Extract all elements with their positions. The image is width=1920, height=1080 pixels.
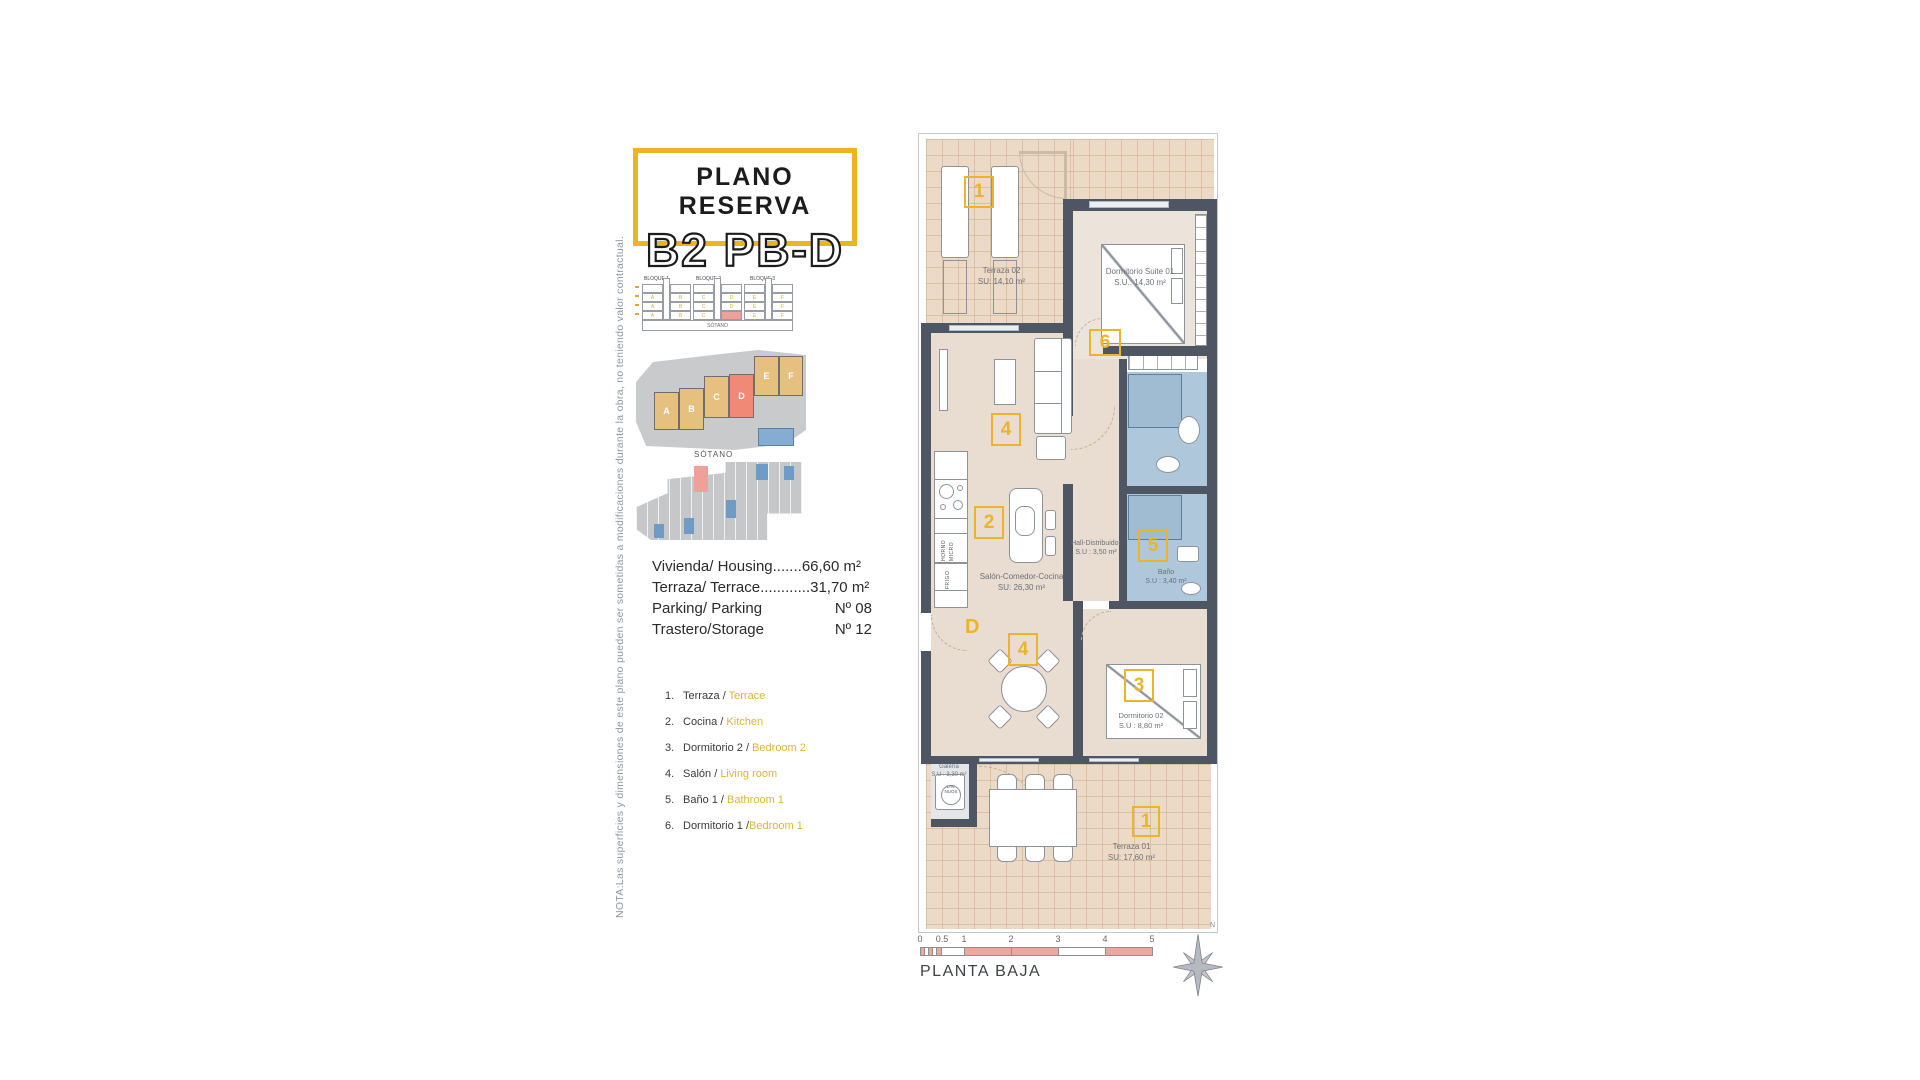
legend-item: 4.Salón / Living room: [665, 768, 875, 780]
elevation-sotano-band: SÓTANO: [642, 320, 793, 331]
legend-item: 3.Dormitorio 2 / Bedroom 2: [665, 742, 875, 754]
wall: [1207, 211, 1217, 761]
elevation-cell: C: [693, 311, 714, 320]
room-hall-distribuidor: [1073, 359, 1119, 601]
elevation-cell: [670, 284, 691, 293]
scale-tick: 3: [1055, 934, 1060, 944]
room-area: SU: 26,30 m²: [959, 583, 1084, 594]
legend-item: 6.Dormitorio 1 /Bedroom 1: [665, 820, 875, 832]
label-terraza02: Terraza 02 SU: 14,10 m²: [949, 266, 1054, 288]
basement-blue-cell: [654, 524, 664, 538]
info-value: 31,70 m²: [810, 577, 869, 598]
title-line1: PLANO RESERVA: [638, 163, 852, 221]
scale-segment: [1105, 947, 1153, 956]
label-galeria: Galería S.U : 3,30 m²: [925, 763, 973, 779]
title-box: PLANO RESERVA B2 PB-D: [633, 148, 857, 246]
level-tick: [635, 313, 639, 315]
floor-plan: HORNO MICRO FRIGO LAV. NUOS 1 6 4 2 5 4 …: [918, 133, 1218, 933]
compass-star-icon: [1168, 930, 1228, 996]
room-area: S.U : 3,30 m²: [925, 771, 973, 779]
toilet-bano: [1177, 546, 1199, 562]
site-unit-f: F: [779, 356, 803, 396]
label-bano: Baño S.U : 3,40 m²: [1127, 568, 1205, 587]
scale-segment: [964, 947, 1012, 956]
elevation-cell: [772, 284, 793, 293]
legend-en: Bedroom 2: [752, 742, 806, 754]
info-label: Parking/ Parking: [652, 598, 762, 619]
basement-highlight-cell: [694, 466, 708, 492]
room-name: Hall-Distribuidor: [1056, 539, 1136, 548]
lav-label: LAV. NUOS: [936, 784, 966, 795]
site-unit-c: C: [704, 376, 729, 418]
room-area: SU: 14,10 m²: [949, 277, 1054, 288]
marker-5-bano1: 5: [1138, 529, 1168, 562]
label-hall: Hall-Distribuidor S.U : 3,50 m²: [1056, 539, 1136, 558]
legend-num: 4.: [665, 768, 683, 780]
elevation-cell: E: [744, 302, 765, 311]
label-dorm02: Dormitorio 02 S.U : 8,80 m²: [1079, 711, 1203, 731]
chair: [1025, 846, 1045, 862]
basement-blue-cell: [684, 518, 694, 534]
info-row-terraza: Terraza/ Terrace............31,70 m²: [652, 577, 872, 598]
chair: [997, 846, 1017, 862]
shower-suite: [1128, 374, 1182, 428]
scale-tick: 4: [1102, 934, 1107, 944]
compass-rose: N: [1168, 922, 1228, 996]
room-name: Baño: [1127, 568, 1205, 577]
washing-machine: LAV. NUOS: [935, 774, 965, 810]
wall: [1073, 601, 1079, 609]
info-row-trastero: Trastero/StorageNº 12: [652, 619, 872, 640]
wall: [1119, 359, 1127, 601]
elevation-cell: F: [772, 302, 793, 311]
washbasin-suite: [1178, 416, 1200, 444]
legend-es: Salón /: [683, 768, 720, 780]
coffee-table: [994, 359, 1016, 405]
room-area: S.U : 3,40 m²: [1127, 577, 1205, 586]
legend-es: Cocina /: [683, 716, 726, 728]
site-unit-b: B: [679, 388, 704, 430]
scale-tick: 0: [917, 934, 922, 944]
window: [1089, 201, 1169, 208]
wall: [1063, 199, 1073, 359]
room-area: S.U : 3,50 m²: [1056, 548, 1136, 557]
legend-num: 6.: [665, 820, 683, 832]
pillow: [1183, 669, 1197, 697]
chair: [1053, 846, 1073, 862]
marker-3-dormitorio2: 3: [1124, 669, 1154, 702]
elevation-cell: F: [772, 311, 793, 320]
nota-vertical-text: NOTA:Las superficies y dimensiones de es…: [614, 148, 632, 918]
elevation-cell: F: [772, 293, 793, 302]
elevation-cell: A: [642, 302, 663, 311]
scale-tick: 0.5: [936, 934, 949, 944]
chair: [1025, 774, 1045, 790]
legend-num: 3.: [665, 742, 683, 754]
legend-item: 5.Baño 1 / Bathroom 1: [665, 794, 875, 806]
legend-item: 1.Terraza / Terrace: [665, 690, 875, 702]
level-tick: [635, 304, 639, 306]
elevation-cell: [744, 284, 765, 293]
building-elevation-diagram: BLOQUE 1 BLOQUE 2 BLOQUE 3 A B C D E F A…: [642, 276, 794, 352]
level-tick: [635, 295, 639, 297]
site-unit-d-highlighted: D: [729, 374, 754, 418]
scale-segment: [1058, 947, 1106, 956]
sun-lounger: [991, 166, 1019, 258]
site-unit-a: A: [654, 392, 679, 430]
legend-num: 1.: [665, 690, 683, 702]
info-label: Vivienda/ Housing.......: [652, 556, 802, 577]
hob-burner: [940, 504, 946, 510]
room-area: SU: 17,60 m²: [1079, 853, 1184, 864]
marker-4-salon: 4: [991, 413, 1021, 446]
dining-table-round: [1001, 666, 1047, 712]
label-terraza01: Terraza 01 SU: 17,60 m²: [1079, 842, 1184, 864]
legend-item: 2.Cocina / Kitchen: [665, 716, 875, 728]
legend-es: Terraza /: [683, 690, 729, 702]
planta-baja-label: PLANTA BAJA: [920, 963, 1041, 981]
legend-es: Baño 1 /: [683, 794, 727, 806]
chair: [997, 774, 1017, 790]
sofa: [1034, 338, 1072, 434]
room-name: Dormitorio Suite 01: [1077, 267, 1203, 278]
room-name: Terraza 01: [1079, 842, 1184, 853]
info-label: Trastero/Storage: [652, 619, 764, 640]
room-name: Salón-Comedor-Cocina: [959, 572, 1084, 583]
basement-blue-cell: [784, 466, 794, 480]
frigo-label: FRIGO: [945, 565, 951, 589]
window: [1089, 758, 1139, 762]
basement-label: SÓTANO: [694, 450, 733, 459]
site-unit-e: E: [754, 356, 779, 396]
info-row-parking: Parking/ ParkingNº 08: [652, 598, 872, 619]
micro-label: MICRO: [949, 535, 955, 561]
elevation-cell: E: [744, 311, 765, 320]
hob-burner: [953, 500, 963, 510]
info-value: Nº 08: [835, 598, 872, 619]
legend-en: Kitchen: [726, 716, 763, 728]
stool: [1045, 536, 1056, 556]
elevation-cell: C: [693, 302, 714, 311]
room-name: Dormitorio 02: [1079, 711, 1203, 721]
marker-1-terraza02: 1: [964, 176, 994, 208]
tv-unit: [939, 349, 948, 411]
horno-label: HORNO: [941, 535, 947, 561]
basement-blue-cell: [756, 464, 768, 480]
title-line2: B2 PB-D: [638, 223, 852, 277]
hob-burner: [939, 484, 954, 499]
marker-6-dormitorio1: 6: [1089, 329, 1121, 356]
hob-burner: [957, 485, 963, 491]
basement-blue-cell: [726, 500, 736, 518]
room-area: S.U.: 14,30 m²: [1077, 278, 1203, 289]
room-name: Terraza 02: [949, 266, 1054, 277]
room-name: Galería: [925, 763, 973, 771]
housing-info: Vivienda/ Housing.......66,60 m² Terraza…: [652, 556, 872, 640]
room-area: S.U : 8,80 m²: [1079, 721, 1203, 731]
legend-en: Terrace: [729, 690, 766, 702]
info-row-vivienda: Vivienda/ Housing.......66,60 m²: [652, 556, 872, 577]
scale-segment: [941, 947, 965, 956]
site-pool: [758, 428, 794, 446]
elevation-cell: [721, 284, 742, 293]
outdoor-table: [989, 789, 1077, 847]
tower: [714, 278, 721, 320]
sofa-chaise: [1036, 436, 1066, 460]
info-value: Nº 12: [835, 619, 872, 640]
legend-num: 2.: [665, 716, 683, 728]
legend-es: Dormitorio 1 /: [683, 820, 749, 832]
island-sink: [1015, 506, 1035, 536]
north-label: N: [1210, 922, 1215, 929]
entrance-door-letter: D: [965, 616, 979, 639]
site-plan-diagram: A B C D E F: [636, 350, 806, 454]
label-suite: Dormitorio Suite 01 S.U.: 14,30 m²: [1077, 267, 1203, 289]
elevation-cell: C: [693, 293, 714, 302]
level-tick: [635, 286, 639, 288]
tower: [663, 278, 670, 320]
marker-4-comedor: 4: [1008, 633, 1038, 666]
wall: [1109, 601, 1217, 609]
elevation-cell: B: [670, 302, 691, 311]
elevation-cell: A: [642, 311, 663, 320]
legend-en: Bedroom 1: [749, 820, 803, 832]
legend-en: Bathroom 1: [727, 794, 784, 806]
scale-segment: [1011, 947, 1059, 956]
legend-en: Living room: [720, 768, 777, 780]
scale-tick: 1: [961, 934, 966, 944]
scale-tick: 2: [1008, 934, 1013, 944]
wall: [1127, 486, 1207, 494]
elevation-cell: E: [744, 293, 765, 302]
lav-label-line2: NUOS: [936, 789, 966, 794]
chair: [1053, 774, 1073, 790]
elevation-cell-highlighted: [721, 311, 742, 320]
legend-es: Dormitorio 2 /: [683, 742, 752, 754]
label-salon: Salón-Comedor-Cocina SU: 26,30 m²: [959, 572, 1084, 594]
room-terraza02-strip: [1073, 139, 1214, 199]
wall: [921, 651, 931, 763]
wall: [1073, 601, 1083, 761]
scale-tick: 5: [1149, 934, 1154, 944]
scale-bar: 0 0.5 1 2 3 4 5 PLANTA BAJA: [918, 934, 1178, 980]
elevation-cell: D: [721, 293, 742, 302]
marker-1-terraza01: 1: [1132, 806, 1160, 837]
wall: [931, 819, 977, 827]
info-label: Terraza/ Terrace............: [652, 577, 810, 598]
legend-num: 5.: [665, 794, 683, 806]
window: [949, 325, 1019, 331]
stool: [1045, 510, 1056, 530]
info-value: 66,60 m²: [802, 556, 861, 577]
wall: [921, 323, 931, 613]
marker-2-cocina: 2: [974, 506, 1004, 539]
toilet-suite: [1156, 456, 1180, 473]
elevation-cell: A: [642, 293, 663, 302]
tower: [765, 278, 772, 320]
window: [979, 758, 1039, 762]
legend: 1.Terraza / Terrace 2.Cocina / Kitchen 3…: [665, 690, 875, 832]
elevation-cell: D: [721, 302, 742, 311]
elevation-cell: B: [670, 293, 691, 302]
elevation-cell: B: [670, 311, 691, 320]
basement-diagram: SÓTANO: [636, 452, 802, 542]
elevation-cell: [642, 284, 663, 293]
elevation-cell: [693, 284, 714, 293]
